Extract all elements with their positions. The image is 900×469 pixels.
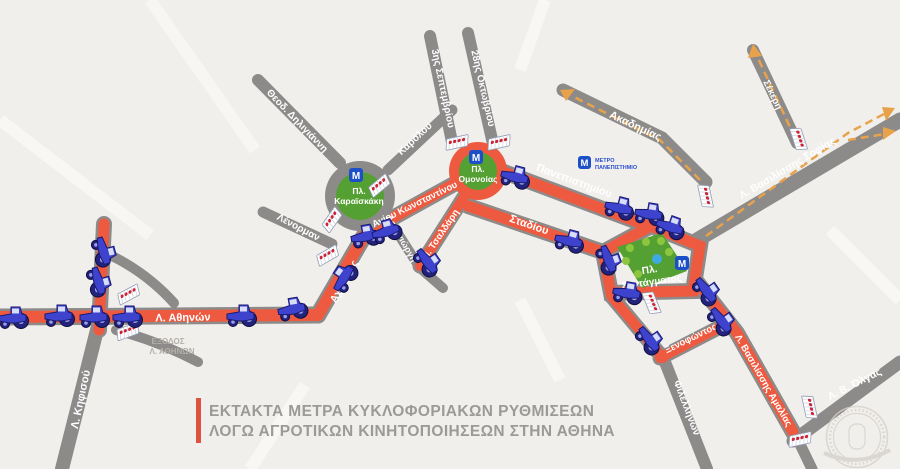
label-omonoia-1: Πλ. — [471, 164, 484, 174]
label-karaiskaki-2: Καραϊσκάκη — [334, 196, 383, 206]
exit-note-line1: ΕΞΟΔΟΣ — [151, 337, 184, 346]
metro-legend-line1: ΜΕΤΡΟ — [595, 158, 615, 164]
traffic-map: Λ. Αθηνών Λ. Κηφισού Αχιλλέως Λένορμαν Θ… — [0, 0, 900, 469]
title-line1: ΕΚΤΑΚΤΑ ΜΕΤΡΑ ΚΥΚΛΟΦΟΡΙΑΚΩΝ ΡΥΘΜΙΣΕΩΝ — [209, 403, 594, 420]
title-accent-bar — [196, 398, 201, 443]
label-syntagma-1: Πλ. — [641, 264, 658, 277]
label-omonoia-2: Ομονοίας — [459, 174, 499, 184]
label-karaiskaki-1: Πλ. — [352, 186, 365, 196]
metro-m-omonoia: M — [472, 153, 480, 164]
syntagma-fountain — [652, 254, 662, 264]
map-canvas: Λ. Αθηνών Λ. Κηφισού Αχιλλέως Λένορμαν Θ… — [0, 0, 900, 469]
label-athinon: Λ. Αθηνών — [155, 312, 210, 325]
exit-note-line2: Λ. ΑΘΗΝΩΝ — [149, 347, 194, 356]
metro-m-panepistimio: M — [581, 158, 589, 169]
metro-legend-line2: ΠΑΝΕΠΙΣΤΗΜΙΟ — [595, 165, 638, 171]
title-line2: ΛΟΓΩ ΑΓΡΟΤΙΚΩΝ ΚΙΝΗΤΟΠΟΙΗΣΕΩΝ ΣΤΗΝ ΑΘΗΝΑ — [209, 423, 615, 440]
metro-m-karaiskaki: M — [352, 171, 360, 182]
metro-m-syntagma: M — [678, 259, 686, 270]
